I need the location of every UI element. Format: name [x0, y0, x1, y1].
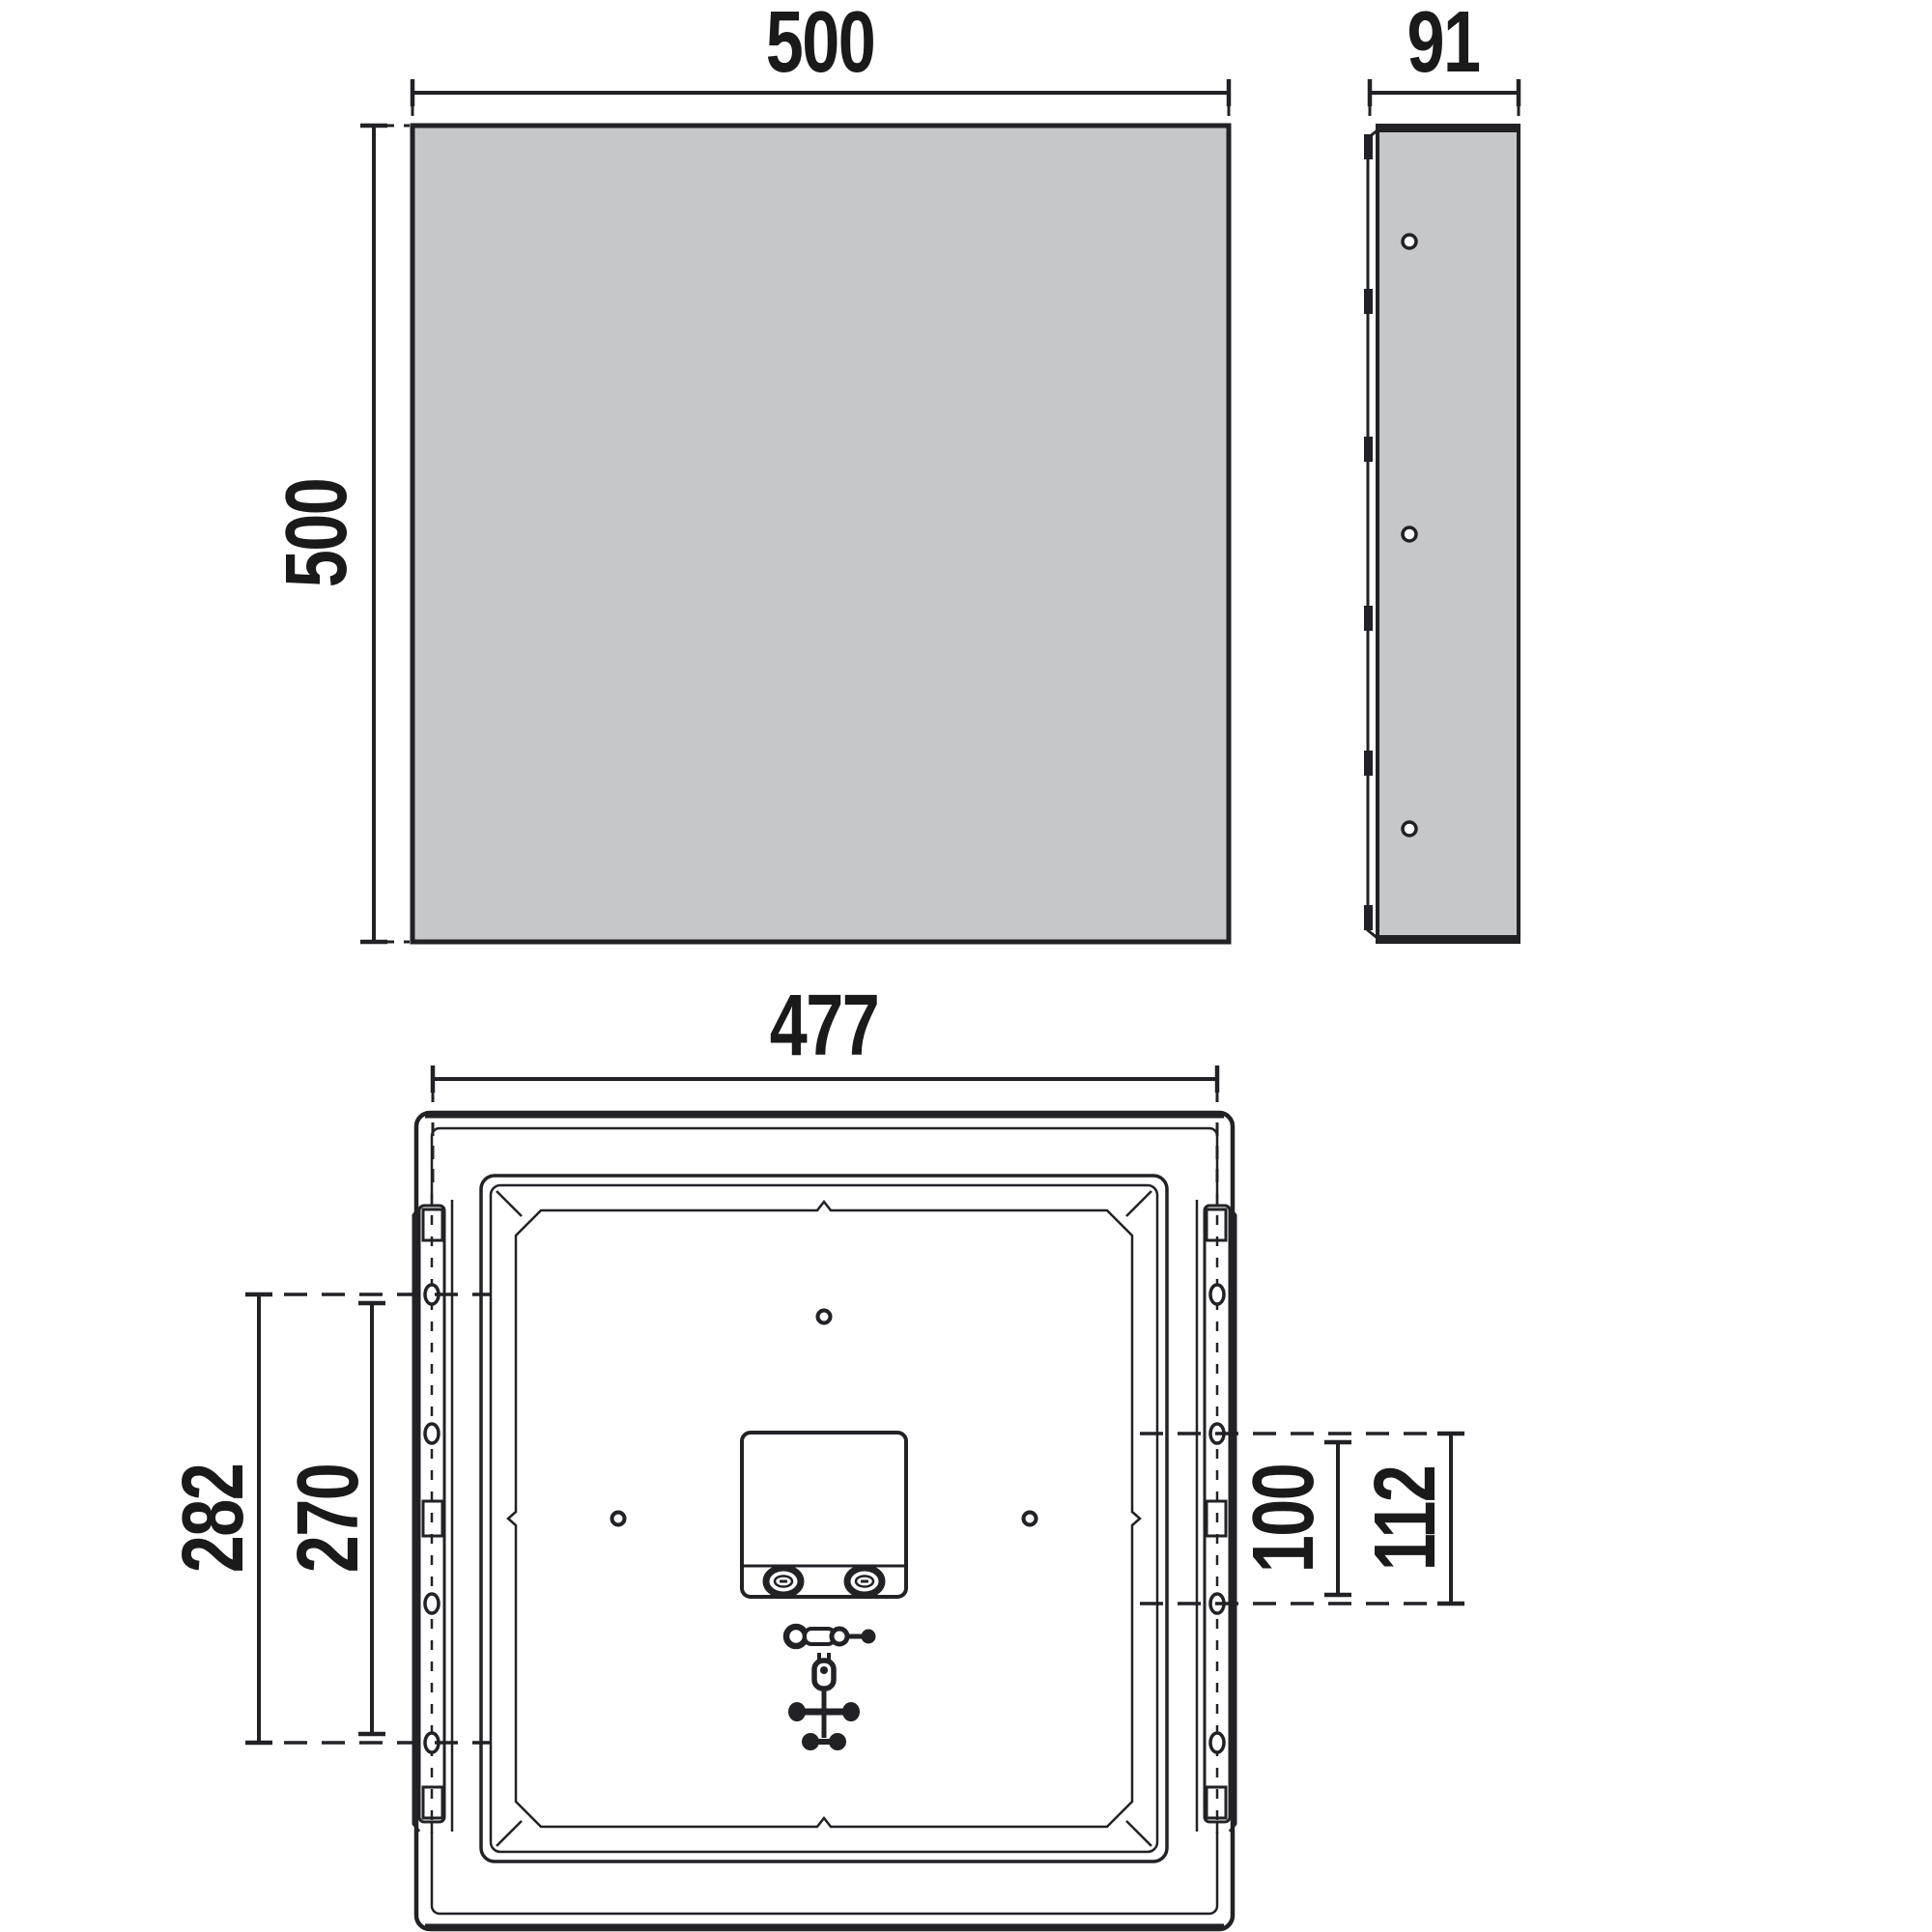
- dim-front-height: [360, 126, 410, 942]
- dim-label-front-height: 500: [273, 479, 360, 587]
- front-view: [360, 79, 1229, 942]
- technical-drawing-canvas: [0, 0, 1932, 1932]
- dim-label-rear-width: 477: [770, 982, 878, 1069]
- side-panel-body: [1378, 126, 1519, 942]
- dim-label-rear-left-outer: 282: [170, 1464, 257, 1573]
- dimension-drawing-page: 500 500 91 477 282 270 100 112: [0, 0, 1932, 1932]
- side-view: [1364, 79, 1519, 942]
- dim-label-front-width: 500: [766, 0, 874, 86]
- dim-label-rear-right-outer: 112: [1362, 1466, 1449, 1572]
- mounting-bracket-right: [1205, 1194, 1230, 1833]
- mounting-bracket-left: [419, 1194, 444, 1833]
- cable-gland-left: [766, 1568, 801, 1595]
- driver-box: [742, 1433, 906, 1597]
- dim-label-rear-left-inner: 270: [285, 1464, 372, 1573]
- dim-label-rear-right-inner: 100: [1240, 1464, 1327, 1573]
- front-panel-face: [412, 126, 1229, 942]
- dim-label-side-width: 91: [1407, 0, 1480, 86]
- cable-gland-right: [847, 1568, 882, 1595]
